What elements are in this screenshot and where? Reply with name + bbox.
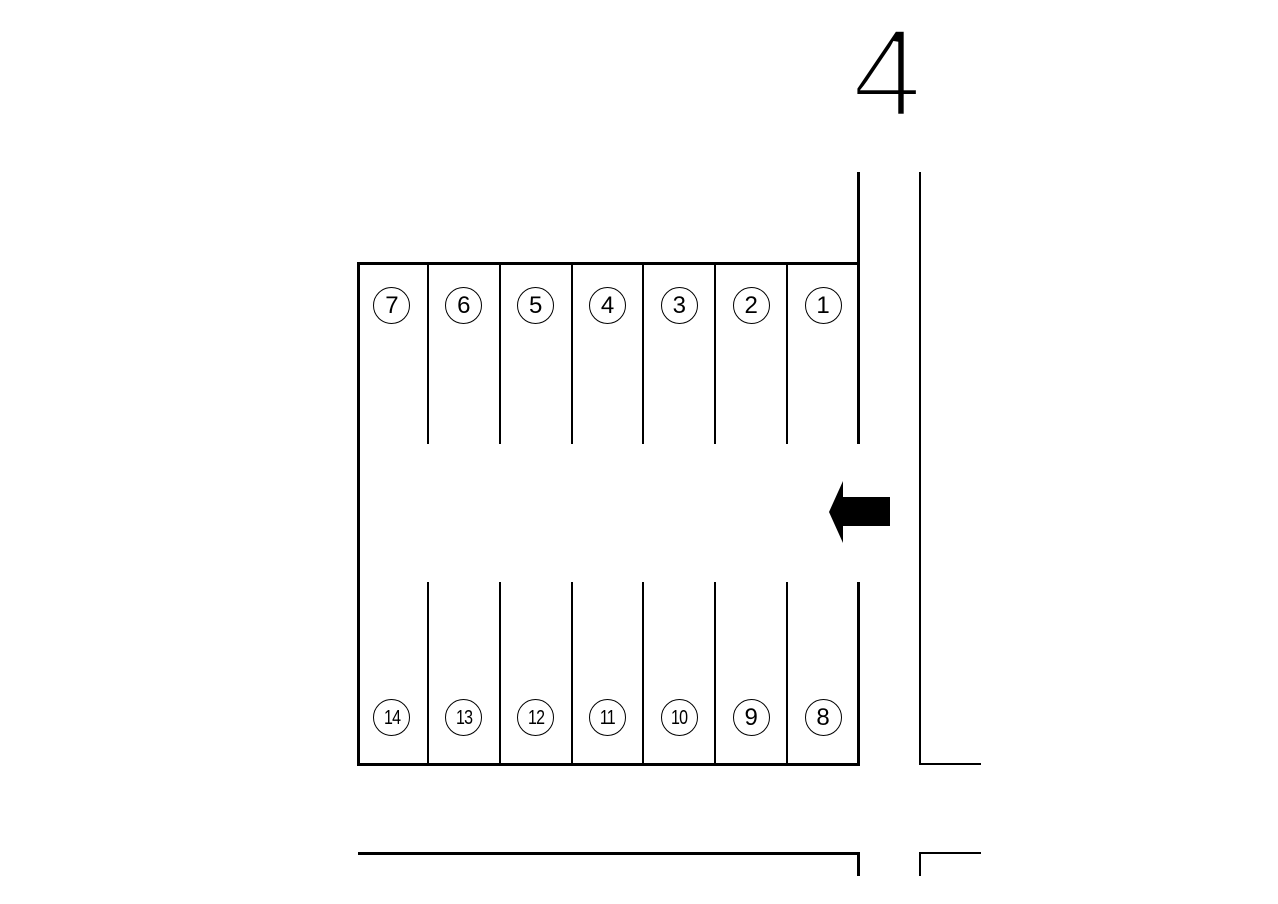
south-road-top-edge <box>358 852 859 855</box>
bottom-row: 14 13 12 11 10 9 8 <box>357 582 858 763</box>
space-number-badge: 5 <box>517 287 554 324</box>
space-number-badge: 12 <box>517 699 554 736</box>
space-number-badge: 6 <box>445 287 482 324</box>
space-number-badge: 14 <box>373 699 410 736</box>
intersection-east-tick <box>919 852 921 876</box>
road-east-branch-top-edge <box>919 763 981 765</box>
space-number: 4 <box>601 294 614 318</box>
space-number: 13 <box>456 708 472 728</box>
parking-space: 13 <box>429 582 501 763</box>
intersection-west-tick <box>857 852 860 876</box>
parking-space: 8 <box>788 582 858 763</box>
parking-space: 7 <box>357 265 429 444</box>
top-row: 7 6 5 4 3 2 1 <box>357 265 858 444</box>
south-road-east-edge <box>919 852 981 854</box>
space-number-badge: 13 <box>445 699 482 736</box>
space-number-badge: 3 <box>661 287 698 324</box>
space-number-badge: 11 <box>589 699 626 736</box>
space-number-badge: 9 <box>733 699 770 736</box>
space-number-badge: 1 <box>805 287 842 324</box>
parking-space: 10 <box>644 582 716 763</box>
space-number: 3 <box>673 294 686 318</box>
lot-bottom-border <box>357 763 860 766</box>
space-number: 9 <box>745 706 758 730</box>
parking-space: 14 <box>357 582 429 763</box>
space-number: 8 <box>816 706 829 730</box>
parking-space: 2 <box>716 265 788 444</box>
parking-space: 1 <box>788 265 858 444</box>
space-number: 11 <box>600 708 615 728</box>
space-number: 6 <box>457 294 470 318</box>
space-number: 7 <box>385 294 398 318</box>
space-number-badge: 10 <box>661 699 698 736</box>
space-number: 14 <box>384 708 400 728</box>
space-number-badge: 8 <box>805 699 842 736</box>
parking-space: 3 <box>644 265 716 444</box>
space-number-badge: 4 <box>589 287 626 324</box>
space-number: 12 <box>528 708 544 728</box>
space-number-badge: 7 <box>373 287 410 324</box>
space-number: 5 <box>529 294 542 318</box>
parking-space: 11 <box>573 582 645 763</box>
space-number-badge: 2 <box>733 287 770 324</box>
parking-space: 12 <box>501 582 573 763</box>
parking-space: 9 <box>716 582 788 763</box>
road-east-edge <box>919 172 921 765</box>
parking-space: 5 <box>501 265 573 444</box>
parking-space: 6 <box>429 265 501 444</box>
parking-space: 4 <box>573 265 645 444</box>
entrance-arrow-icon <box>829 481 890 543</box>
space-number: 1 <box>816 294 829 318</box>
space-number: 2 <box>745 294 758 318</box>
road-number-label: 4 <box>846 18 928 128</box>
space-number: 10 <box>671 708 687 728</box>
parking-map: 4 7 6 5 4 3 2 <box>0 0 1278 904</box>
